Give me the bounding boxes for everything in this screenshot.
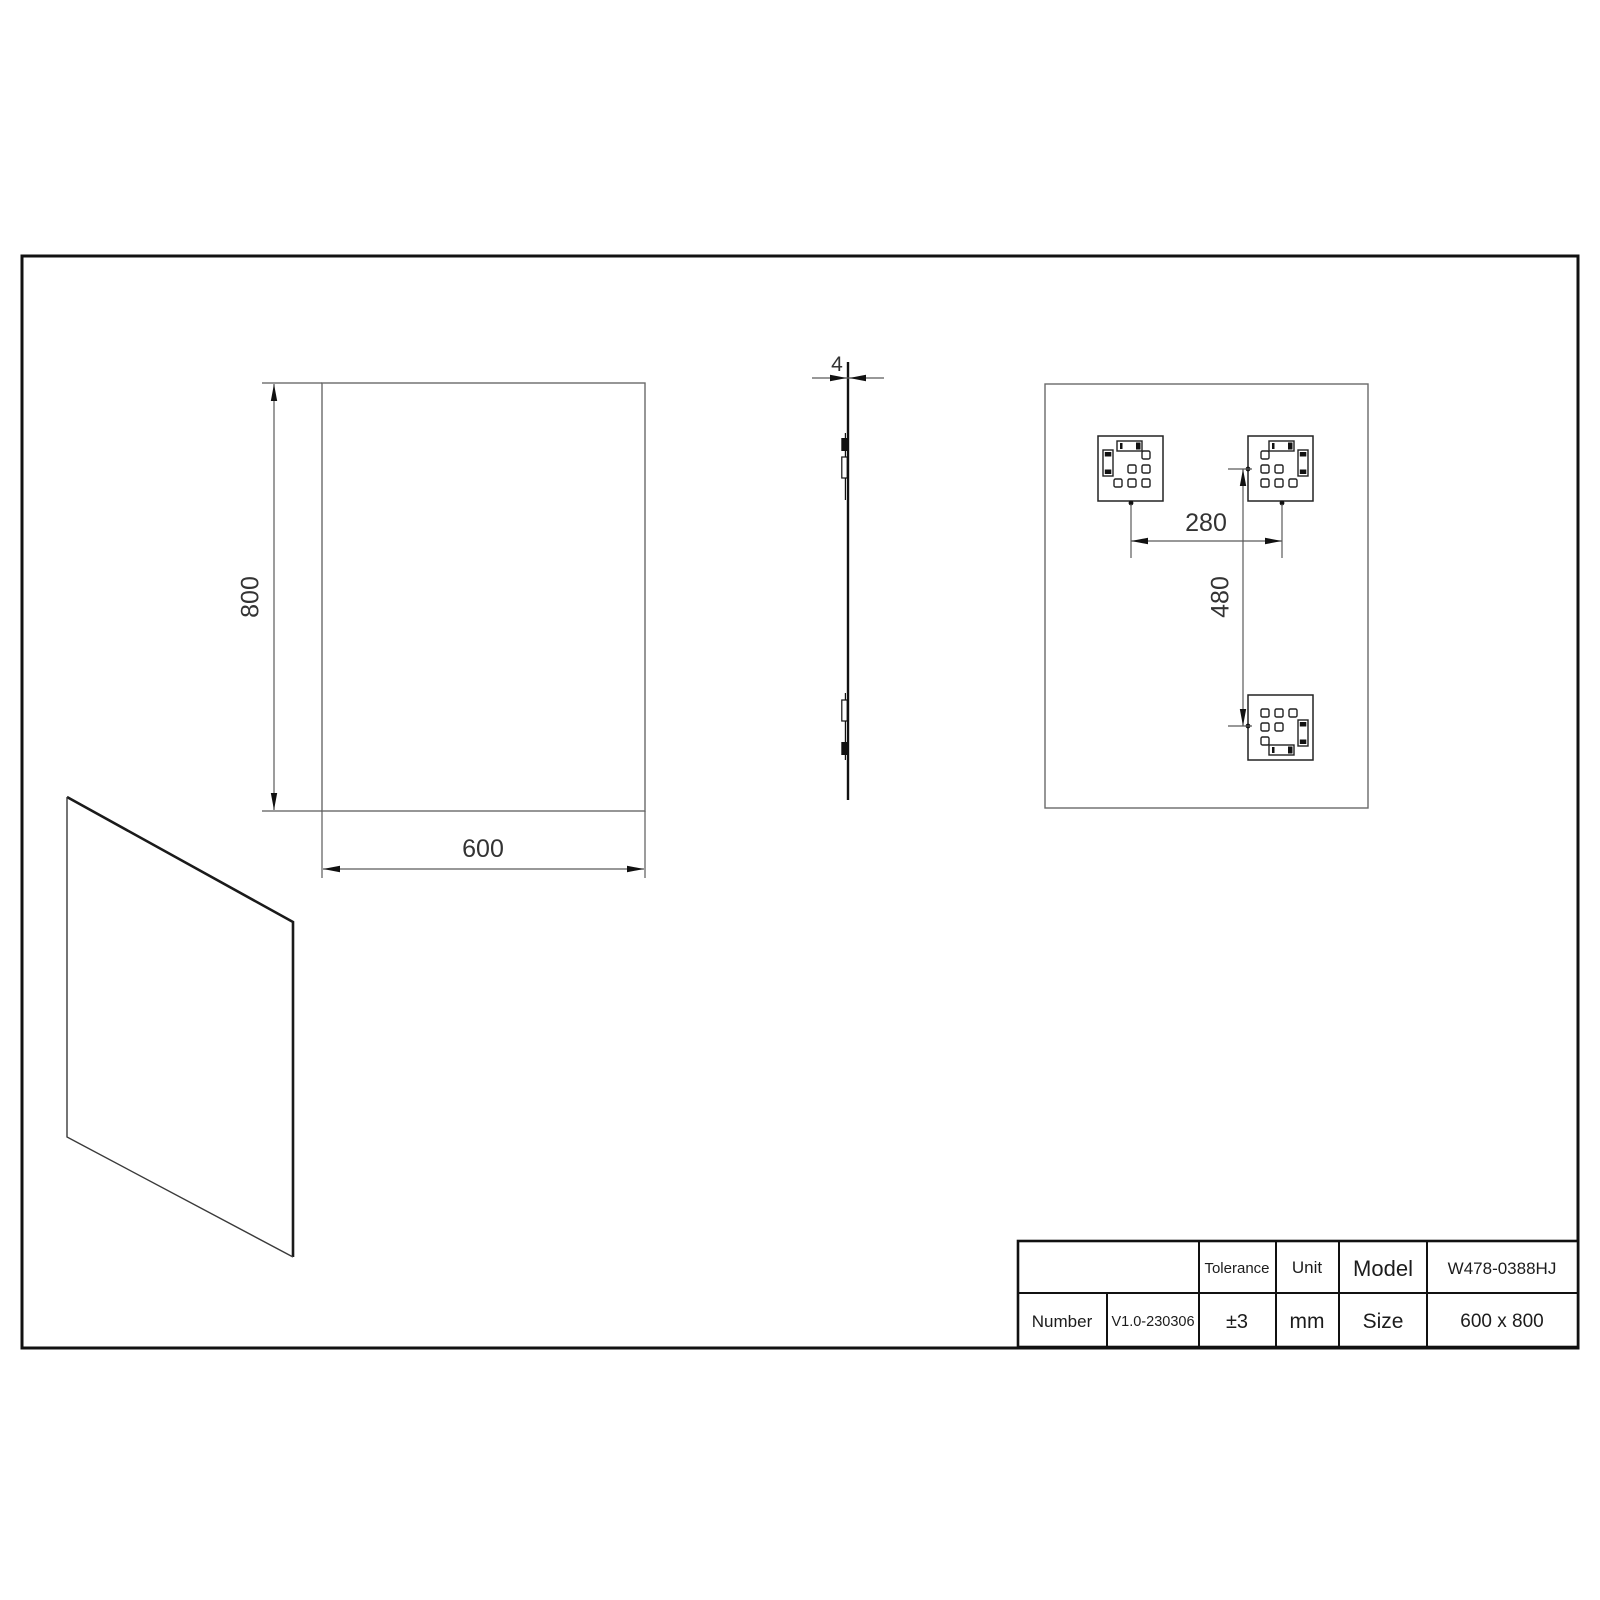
- dim-width-label: 600: [462, 835, 504, 863]
- perspective-back-edges: [67, 797, 293, 1257]
- perspective-front-edges: [67, 797, 293, 1257]
- profile-block: [841, 438, 847, 451]
- slot-tick: [1288, 747, 1293, 754]
- slot-tick: [1120, 443, 1123, 449]
- perspective-view: [67, 797, 293, 1257]
- bracket-hole: [1142, 451, 1150, 459]
- number-value: V1.0-230306: [1111, 1314, 1194, 1330]
- bracket-hole: [1142, 465, 1150, 473]
- arrow-left-icon: [849, 375, 866, 381]
- dim-height: 800: [237, 384, 278, 810]
- bracket-hole: [1261, 451, 1269, 459]
- slot-tick: [1105, 470, 1112, 475]
- dim-bracket-v-label: 480: [1207, 576, 1235, 618]
- unit-label: Unit: [1292, 1258, 1323, 1277]
- profile-block: [841, 742, 847, 755]
- profile-slot: [842, 700, 847, 721]
- dim-bracket-spacing-vertical: 480: [1207, 467, 1252, 729]
- number-label: Number: [1032, 1312, 1093, 1331]
- slot-tick: [1105, 452, 1112, 457]
- dim-thickness-label: 4: [831, 353, 843, 376]
- bracket-hole: [1275, 723, 1283, 731]
- tolerance-value: ±3: [1226, 1311, 1248, 1333]
- bracket-hole: [1275, 709, 1283, 717]
- bracket-hole: [1261, 479, 1269, 487]
- slot-tick: [1272, 443, 1275, 449]
- drawing-sheet: 800 600 4: [0, 0, 1600, 1600]
- bracket-hole: [1289, 479, 1297, 487]
- bracket-hole: [1128, 479, 1136, 487]
- slot-tick: [1300, 722, 1307, 727]
- dim-bracket-h-label: 280: [1185, 509, 1227, 537]
- arrow-down-icon: [271, 793, 277, 810]
- bracket-hole: [1142, 479, 1150, 487]
- profile-slot: [842, 457, 847, 478]
- bracket-hole: [1275, 479, 1283, 487]
- bracket-hole: [1261, 723, 1269, 731]
- slot-tick: [1300, 452, 1307, 457]
- side-bracket-profile-top: [841, 433, 847, 500]
- dim-height-label: 800: [237, 576, 265, 618]
- side-view: 4: [812, 353, 884, 800]
- tolerance-label: Tolerance: [1204, 1260, 1269, 1277]
- model-value: W478-0388HJ: [1448, 1259, 1557, 1278]
- title-block: Tolerance Unit Model W478-0388HJ Number …: [1018, 1241, 1578, 1347]
- slot-tick: [1272, 747, 1275, 753]
- side-bracket-profile-bottom: [841, 693, 847, 760]
- dim-bracket-spacing-horizontal: 280: [1129, 501, 1285, 558]
- bracket-hole: [1275, 465, 1283, 473]
- slot-tick: [1300, 470, 1307, 475]
- arrow-right-icon: [1265, 538, 1282, 544]
- slot-tick: [1136, 443, 1141, 450]
- mounting-bracket-top-left: [1098, 436, 1163, 501]
- arrow-down-icon: [1240, 709, 1246, 726]
- arrow-right-icon: [627, 866, 644, 872]
- arrow-left-icon: [323, 866, 340, 872]
- size-label: Size: [1363, 1310, 1404, 1333]
- bracket-hole: [1289, 709, 1297, 717]
- front-view: 800 600: [237, 383, 645, 878]
- bracket-hole: [1261, 465, 1269, 473]
- slot-tick: [1288, 443, 1293, 450]
- bracket-hole: [1128, 465, 1136, 473]
- front-view-outline: [322, 383, 645, 811]
- back-view: 280 480: [1045, 384, 1368, 808]
- mounting-bracket-bottom-right: [1248, 695, 1313, 760]
- arrow-left-icon: [1131, 538, 1148, 544]
- bracket-hole: [1261, 709, 1269, 717]
- sheet-border: [22, 256, 1578, 1348]
- mounting-bracket-top-right: [1248, 436, 1313, 501]
- bracket-hole: [1261, 737, 1269, 745]
- bracket-hole: [1114, 479, 1122, 487]
- model-label: Model: [1353, 1256, 1413, 1281]
- arrow-up-icon: [271, 384, 277, 401]
- size-value: 600 x 800: [1460, 1311, 1543, 1332]
- dim-width: 600: [323, 835, 644, 872]
- unit-value: mm: [1290, 1310, 1325, 1333]
- drawing-svg: 800 600 4: [0, 0, 1600, 1600]
- arrow-up-icon: [1240, 469, 1246, 486]
- slot-tick: [1300, 740, 1307, 745]
